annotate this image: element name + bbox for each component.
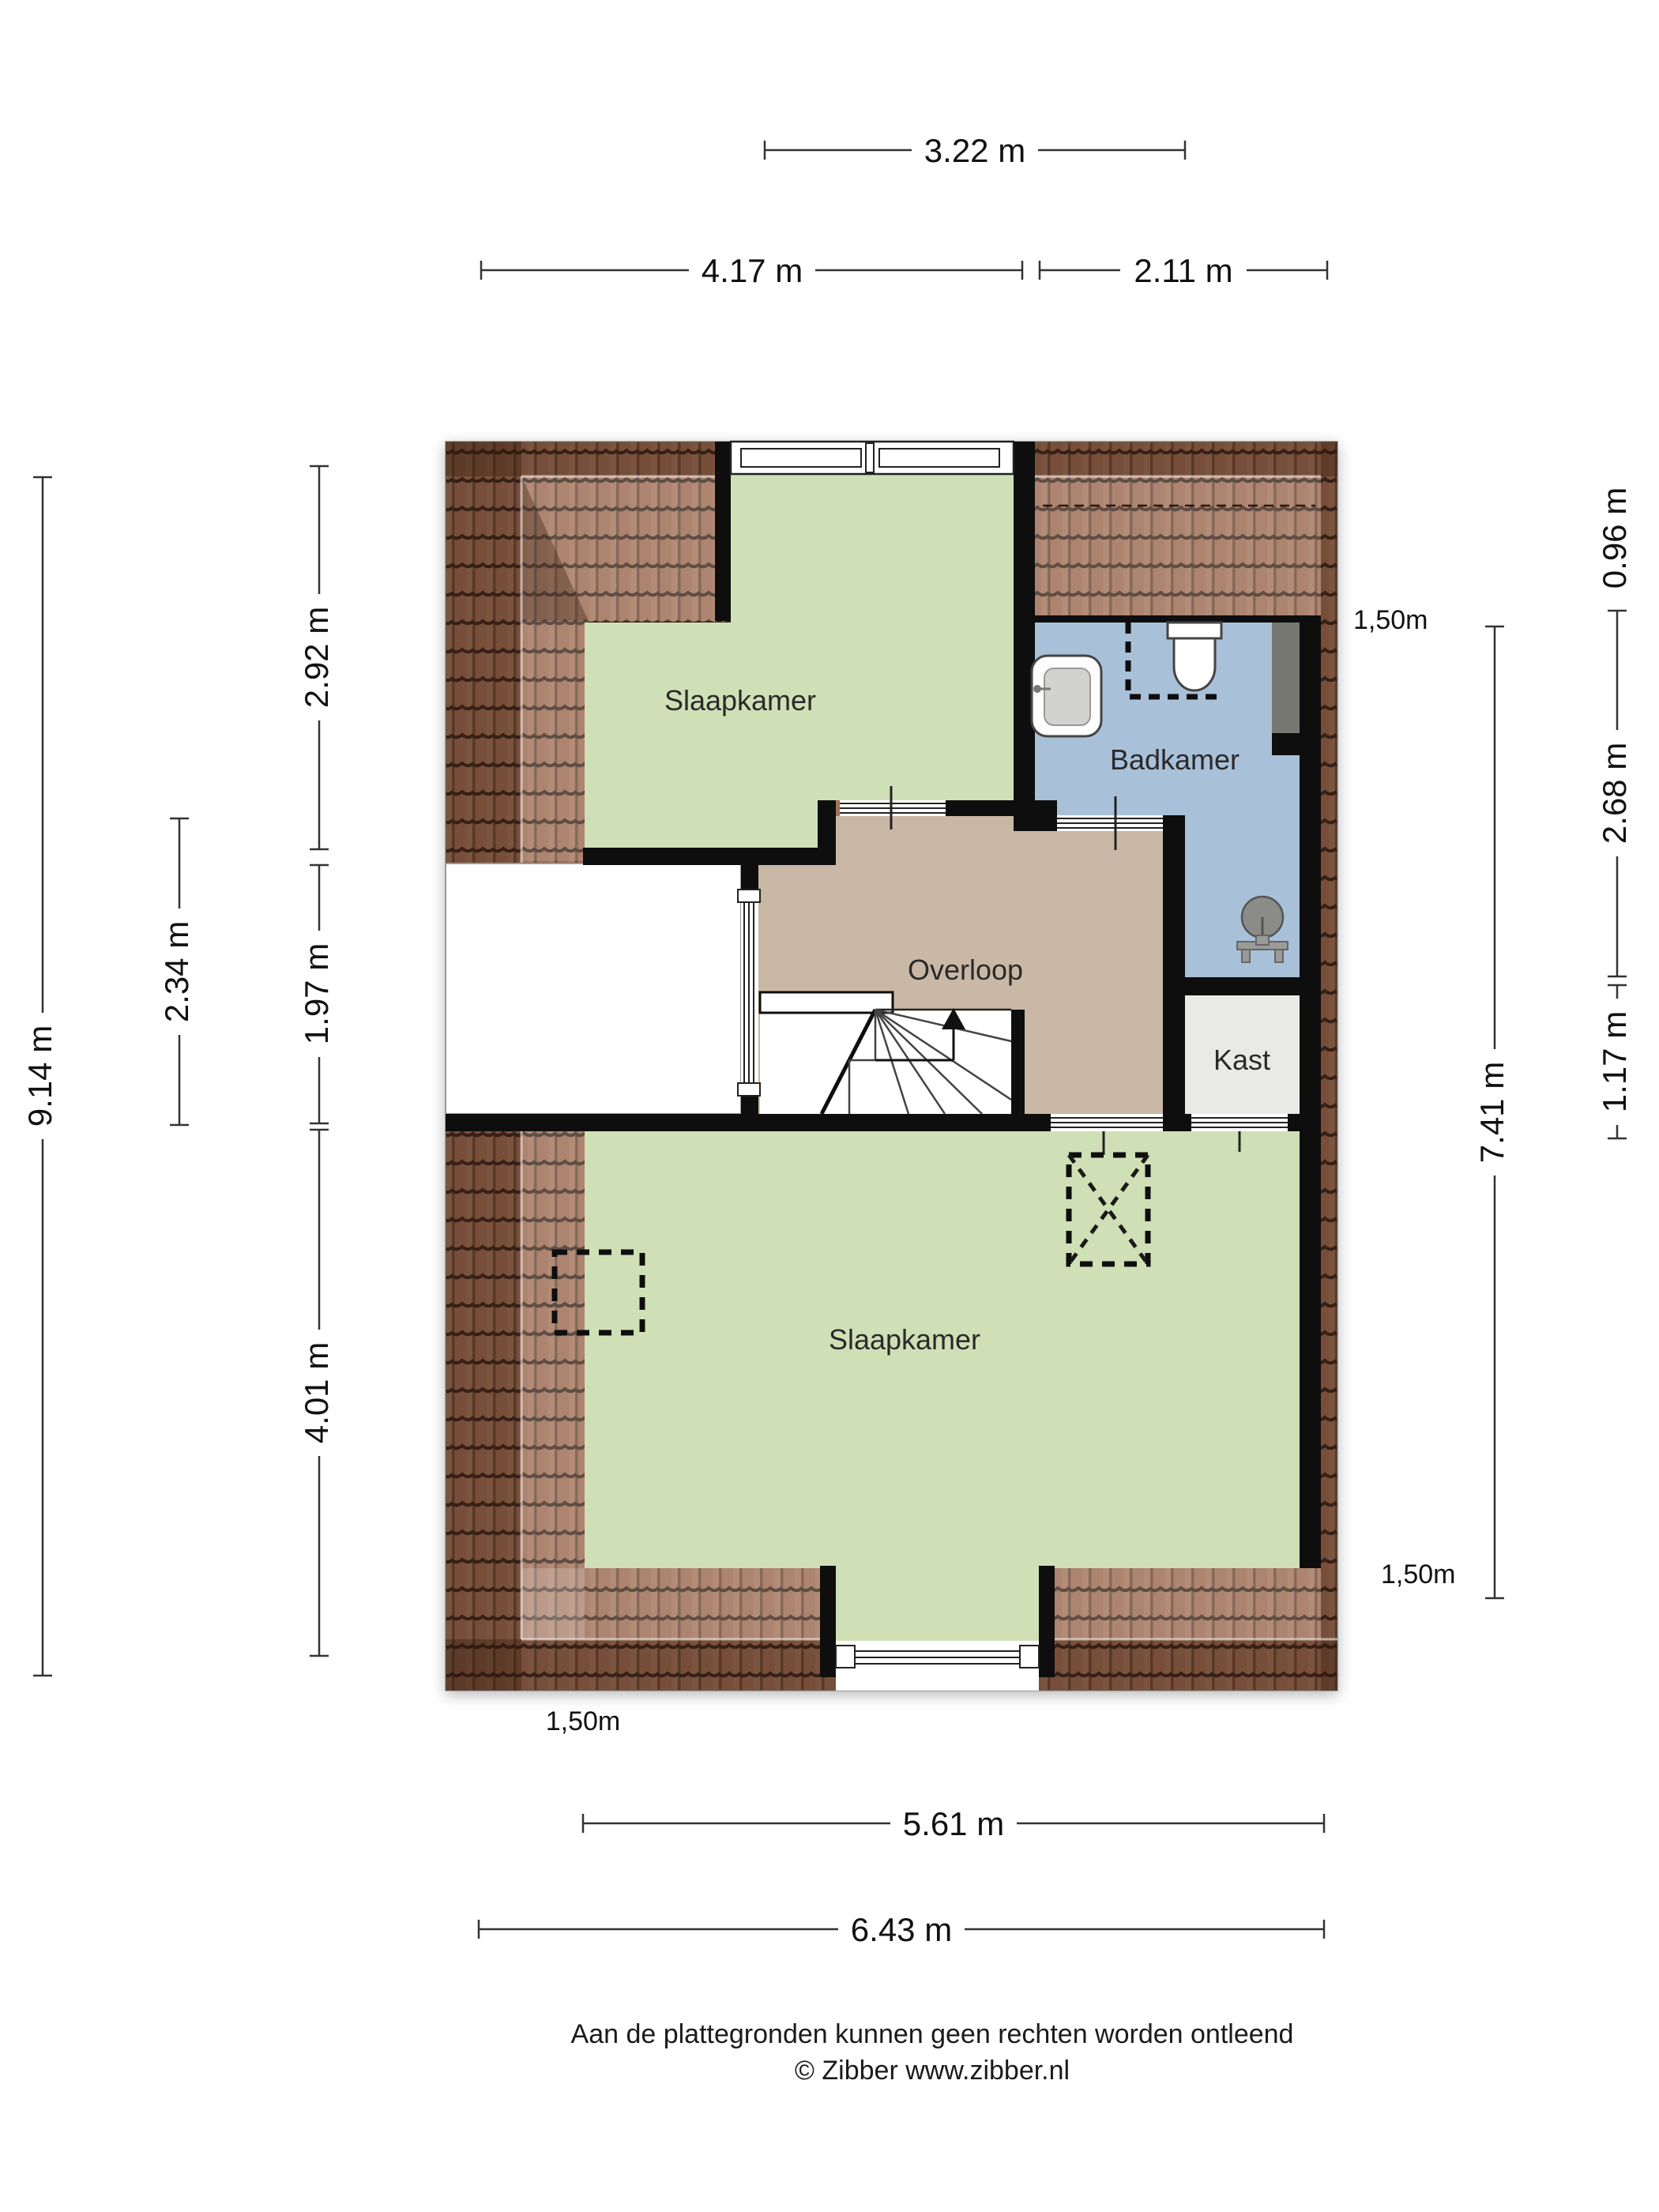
wall: [1272, 733, 1300, 755]
room-label-slaapkamer-top: Slaapkamer: [664, 684, 816, 717]
dim-label: 7.41 m: [1473, 1062, 1510, 1163]
stairs-landing: [760, 992, 893, 1013]
window-top-dormer: [731, 442, 1014, 474]
floorplan-canvas: Slaapkamer Badkamer Overloop Kast Slaapk…: [0, 0, 1659, 2212]
wall: [818, 800, 836, 849]
dim-label: 1.17 m: [1596, 1011, 1633, 1112]
wall: [446, 1114, 1051, 1131]
dim-label: 1.97 m: [298, 943, 335, 1044]
bedroom-bottom-floor: [585, 1131, 1300, 1641]
roof-dark-right: [1321, 442, 1337, 1691]
footer-copyright: © Zibber www.zibber.nl: [795, 2056, 1070, 2086]
height-label: 1,50m: [1381, 1559, 1456, 1589]
duct-block: [1272, 623, 1300, 737]
room-label-kast: Kast: [1213, 1044, 1270, 1076]
stairs-right-wall: [1011, 1010, 1025, 1114]
wall: [1029, 800, 1057, 831]
dim-label: 5.61 m: [903, 1805, 1004, 1842]
roof-light-zone-topright: [1035, 476, 1321, 622]
window-bottom-dormer: [836, 1641, 1039, 1691]
wall: [1300, 620, 1321, 1568]
dim-label: 3.22 m: [924, 132, 1025, 169]
dim-label: 2.34 m: [158, 921, 195, 1022]
roof-light-zone-left: [521, 1130, 585, 1639]
room-label-overloop: Overloop: [908, 954, 1023, 986]
wall: [1014, 442, 1035, 831]
dim-label: 4.01 m: [298, 1342, 335, 1443]
wall: [715, 442, 731, 621]
dim-label: 6.43 m: [851, 1911, 952, 1948]
dim-label: 0.96 m: [1596, 487, 1633, 589]
page: { "dimensions": { "horizontal": ["3.22 m…: [0, 0, 1659, 2212]
window-hall-left: [738, 890, 760, 1096]
wall: [820, 1566, 836, 1677]
void-area: [446, 863, 741, 1114]
wall: [1039, 1566, 1055, 1677]
footer: Aan de plattegronden kunnen geen rechten…: [571, 2019, 1294, 2086]
wall: [1163, 815, 1185, 1131]
dim-label: 2.92 m: [298, 607, 335, 708]
height-label: 1,50m: [1353, 605, 1428, 635]
sink-icon: [1032, 656, 1101, 736]
wall: [946, 800, 1029, 816]
dim-label: 2.68 m: [1596, 743, 1633, 844]
footer-disclaimer: Aan de plattegronden kunnen geen rechten…: [571, 2019, 1294, 2049]
room-label-slaapkamer-bottom: Slaapkamer: [829, 1323, 980, 1356]
staircase: [760, 992, 1025, 1114]
height-label: 1,50m: [546, 1706, 621, 1736]
room-label-badkamer: Badkamer: [1110, 743, 1240, 776]
dim-label: 4.17 m: [702, 252, 803, 289]
dim-label: 9.14 m: [21, 1025, 58, 1127]
wall: [1163, 1114, 1191, 1131]
wall: [1288, 1114, 1321, 1131]
wall: [583, 848, 836, 865]
dim-label: 2.11 m: [1134, 252, 1232, 289]
